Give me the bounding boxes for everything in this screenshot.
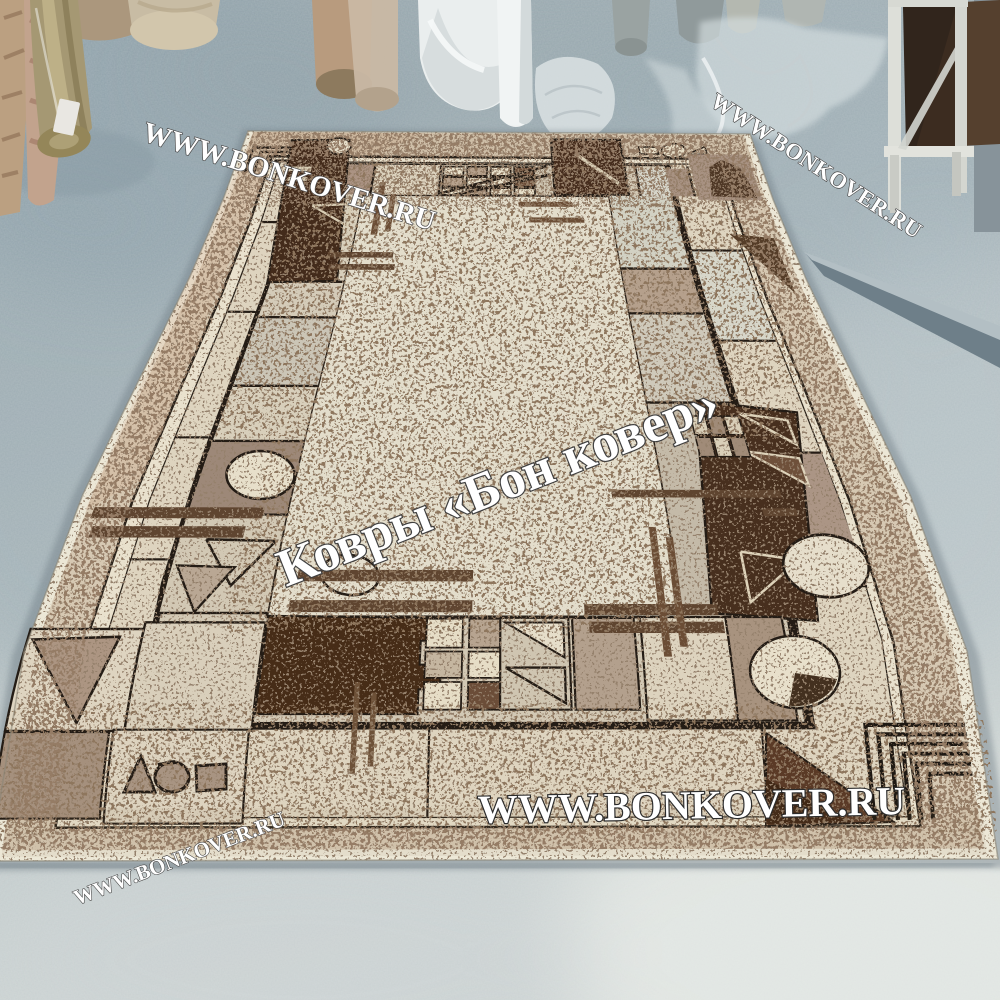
svg-text:WWW.BONKOVER.RU: WWW.BONKOVER.RU bbox=[477, 778, 905, 832]
